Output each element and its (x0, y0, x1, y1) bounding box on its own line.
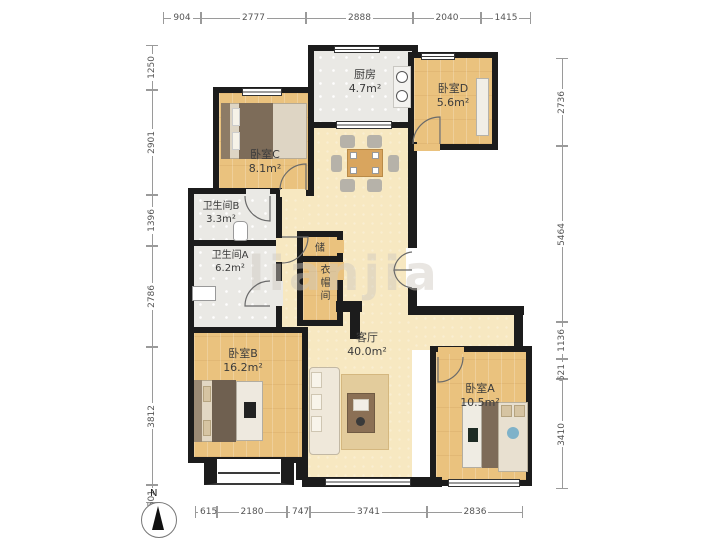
dim-top-1: 904 (163, 12, 201, 24)
wardrobe-bedroom-a (482, 402, 498, 468)
dining-chair (367, 179, 382, 192)
bay-window-glass-line (218, 472, 280, 474)
bed-round-cushion (507, 427, 519, 439)
compass-north-label: N (150, 488, 157, 499)
room-name: 卧室A (465, 382, 495, 395)
window-kitchen-pass (336, 121, 392, 129)
window-kitchen (334, 46, 380, 53)
sink-bathroom-a (192, 286, 216, 301)
pillow (203, 386, 211, 402)
dining-chair (331, 155, 342, 172)
dim-left-1: 1250 (146, 45, 158, 90)
room-label-cloakroom: 衣帽间 (312, 264, 328, 322)
dim-bottom-5: 2836 (427, 506, 523, 518)
room-area: 3.3m² (180, 214, 262, 227)
room-name: 卫生间A (212, 250, 249, 261)
room-area: 6.2m² (190, 263, 270, 276)
dim-right-4: 621 (556, 359, 568, 379)
watermark: lianjia (248, 246, 441, 302)
dim-bottom-3: 747 (287, 506, 310, 518)
dim-top-5: 1415 (481, 12, 531, 24)
room-label-bathroom-a: 卫生间A 6.2m² (190, 250, 270, 275)
door-gap-bedroom-c (280, 189, 306, 197)
teapot (356, 417, 365, 426)
room-label-bedroom-b: 卧室B 16.2m² (203, 347, 283, 375)
living-room-floor-pocket (412, 314, 516, 350)
room-area: 8.1m² (225, 162, 305, 176)
room-name: 卧室C (250, 148, 280, 161)
dim-left-2: 2901 (146, 90, 158, 195)
room-name: 厨房 (354, 68, 376, 81)
dim-bottom-1: 615 (195, 506, 217, 518)
sofa-cushion (311, 372, 322, 388)
room-label-kitchen: 厨房 4.7m² (329, 68, 401, 96)
door-gap-bathroom-b (246, 189, 270, 196)
wall-segment (408, 142, 417, 250)
wall-segment (408, 306, 524, 315)
dim-left-5: 3812 (146, 347, 158, 485)
tray (353, 399, 369, 411)
plate (372, 152, 379, 159)
dim-bottom-2: 2180 (217, 506, 287, 518)
tv-bedroom-b (244, 402, 256, 418)
dining-chair (388, 155, 399, 172)
room-area: 16.2m² (203, 361, 283, 375)
room-name: 客厅 (356, 331, 378, 344)
room-label-storage: 储 (305, 243, 335, 256)
pillow (203, 420, 211, 436)
dim-bottom-4: 3741 (310, 506, 427, 518)
wall-segment (514, 306, 523, 350)
dim-top-3: 2888 (306, 12, 413, 24)
tv-bedroom-a (468, 428, 478, 442)
sofa-cushion (311, 416, 322, 432)
room-name: 衣帽间 (318, 264, 329, 303)
bed-blanket-bedroom-b (212, 380, 236, 442)
floor-plan-canvas: lianjia 厨房 4.7m² 卧室D 5.6m² 卧室C 8.1m² 卫生间… (0, 0, 720, 540)
dining-chair (340, 135, 355, 148)
room-name: 储 (315, 243, 325, 254)
window-bedroom-a (448, 479, 520, 487)
room-name: 卧室D (438, 82, 468, 95)
dim-right-5: 3410 (556, 379, 568, 489)
dim-left-3: 1396 (146, 195, 158, 246)
wall-segment (296, 460, 308, 480)
compass-needle-icon (152, 506, 164, 530)
dining-chair (367, 135, 382, 148)
room-label-bedroom-d: 卧室D 5.6m² (413, 82, 493, 110)
door-gap-bedroom-a (438, 347, 464, 354)
room-label-bathroom-b: 卫生间B 3.3m² (180, 201, 262, 226)
pillow (232, 108, 240, 126)
dim-right-3: 1136 (556, 322, 568, 359)
door-gap-bedroom-d (414, 144, 440, 151)
window-bedroom-c (242, 88, 282, 96)
room-label-bedroom-c: 卧室C 8.1m² (225, 148, 305, 176)
bed-headboard-bedroom-b (194, 380, 202, 442)
sofa-cushion (311, 394, 322, 410)
room-label-living-room: 客厅 40.0m² (330, 331, 404, 359)
dining-chair (340, 179, 355, 192)
plate (372, 167, 379, 174)
window-bedroom-d (421, 53, 455, 60)
plate (350, 152, 357, 159)
dim-left-4: 2786 (146, 246, 158, 347)
dim-top-2: 2777 (201, 12, 306, 24)
room-label-bedroom-a: 卧室A 10.5m² (440, 382, 520, 410)
room-name: 卧室B (228, 347, 258, 360)
plate (350, 167, 357, 174)
dim-right-1: 2736 (556, 58, 568, 146)
room-area: 4.7m² (329, 82, 401, 96)
room-area: 40.0m² (330, 345, 404, 359)
room-area: 10.5m² (440, 396, 520, 410)
window-living-room (325, 478, 411, 486)
dim-right-2: 5464 (556, 146, 568, 322)
dim-top-4: 2040 (413, 12, 481, 24)
room-area: 5.6m² (413, 96, 493, 110)
room-name: 卫生间B (203, 201, 240, 212)
